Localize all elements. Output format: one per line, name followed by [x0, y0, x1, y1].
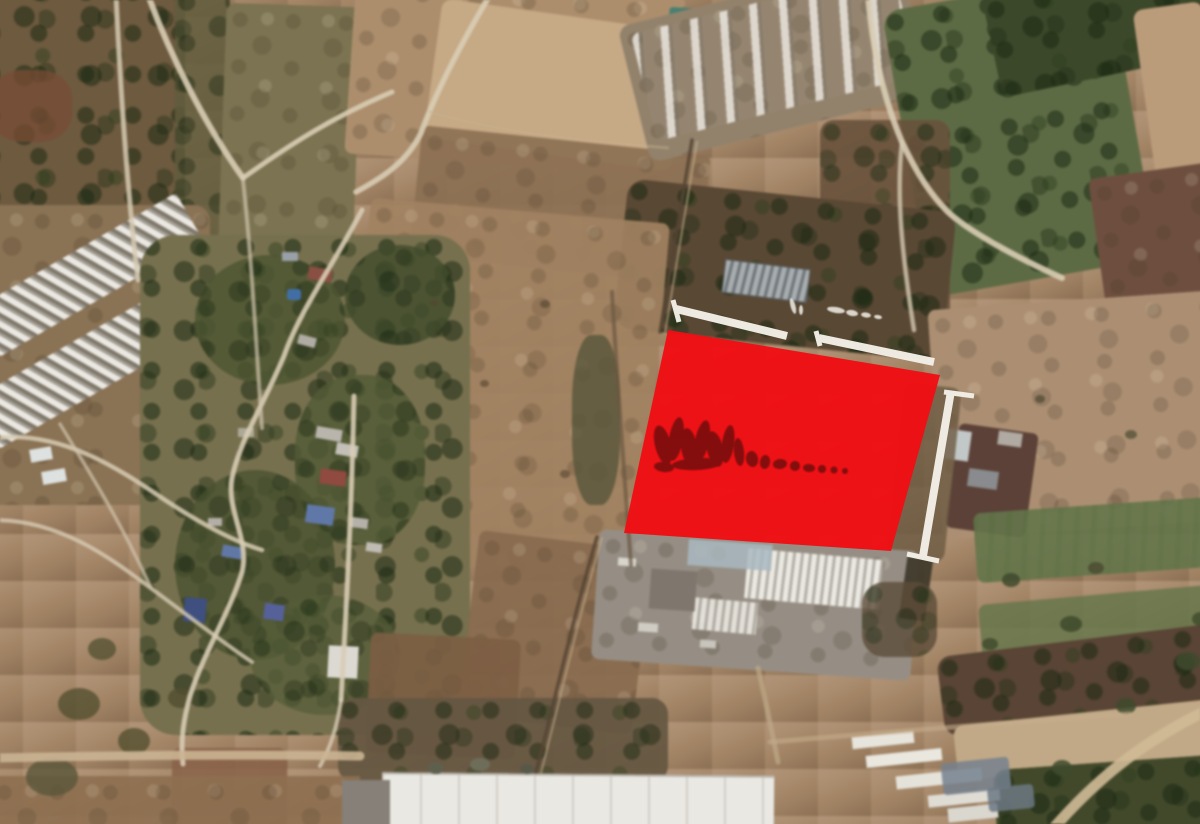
- tick-mark: [861, 312, 872, 319]
- tick-mark: [799, 305, 803, 315]
- tick-mark: [846, 309, 859, 317]
- tick-mark: [827, 306, 846, 315]
- measurement-ticks: [789, 298, 883, 320]
- dimension-line: [673, 300, 679, 322]
- tick-mark: [789, 298, 798, 315]
- scribble-blob: [842, 468, 848, 474]
- scribble-blob: [790, 461, 800, 471]
- dimension-line: [816, 331, 820, 346]
- dimension-line: [676, 309, 787, 336]
- dimension-line: [907, 554, 939, 561]
- scribble-blob: [831, 467, 838, 474]
- annotation-overlay: [0, 0, 1200, 824]
- tick-mark: [874, 314, 883, 319]
- scribble-blob: [818, 465, 826, 473]
- satellite-map-image: [0, 0, 1200, 824]
